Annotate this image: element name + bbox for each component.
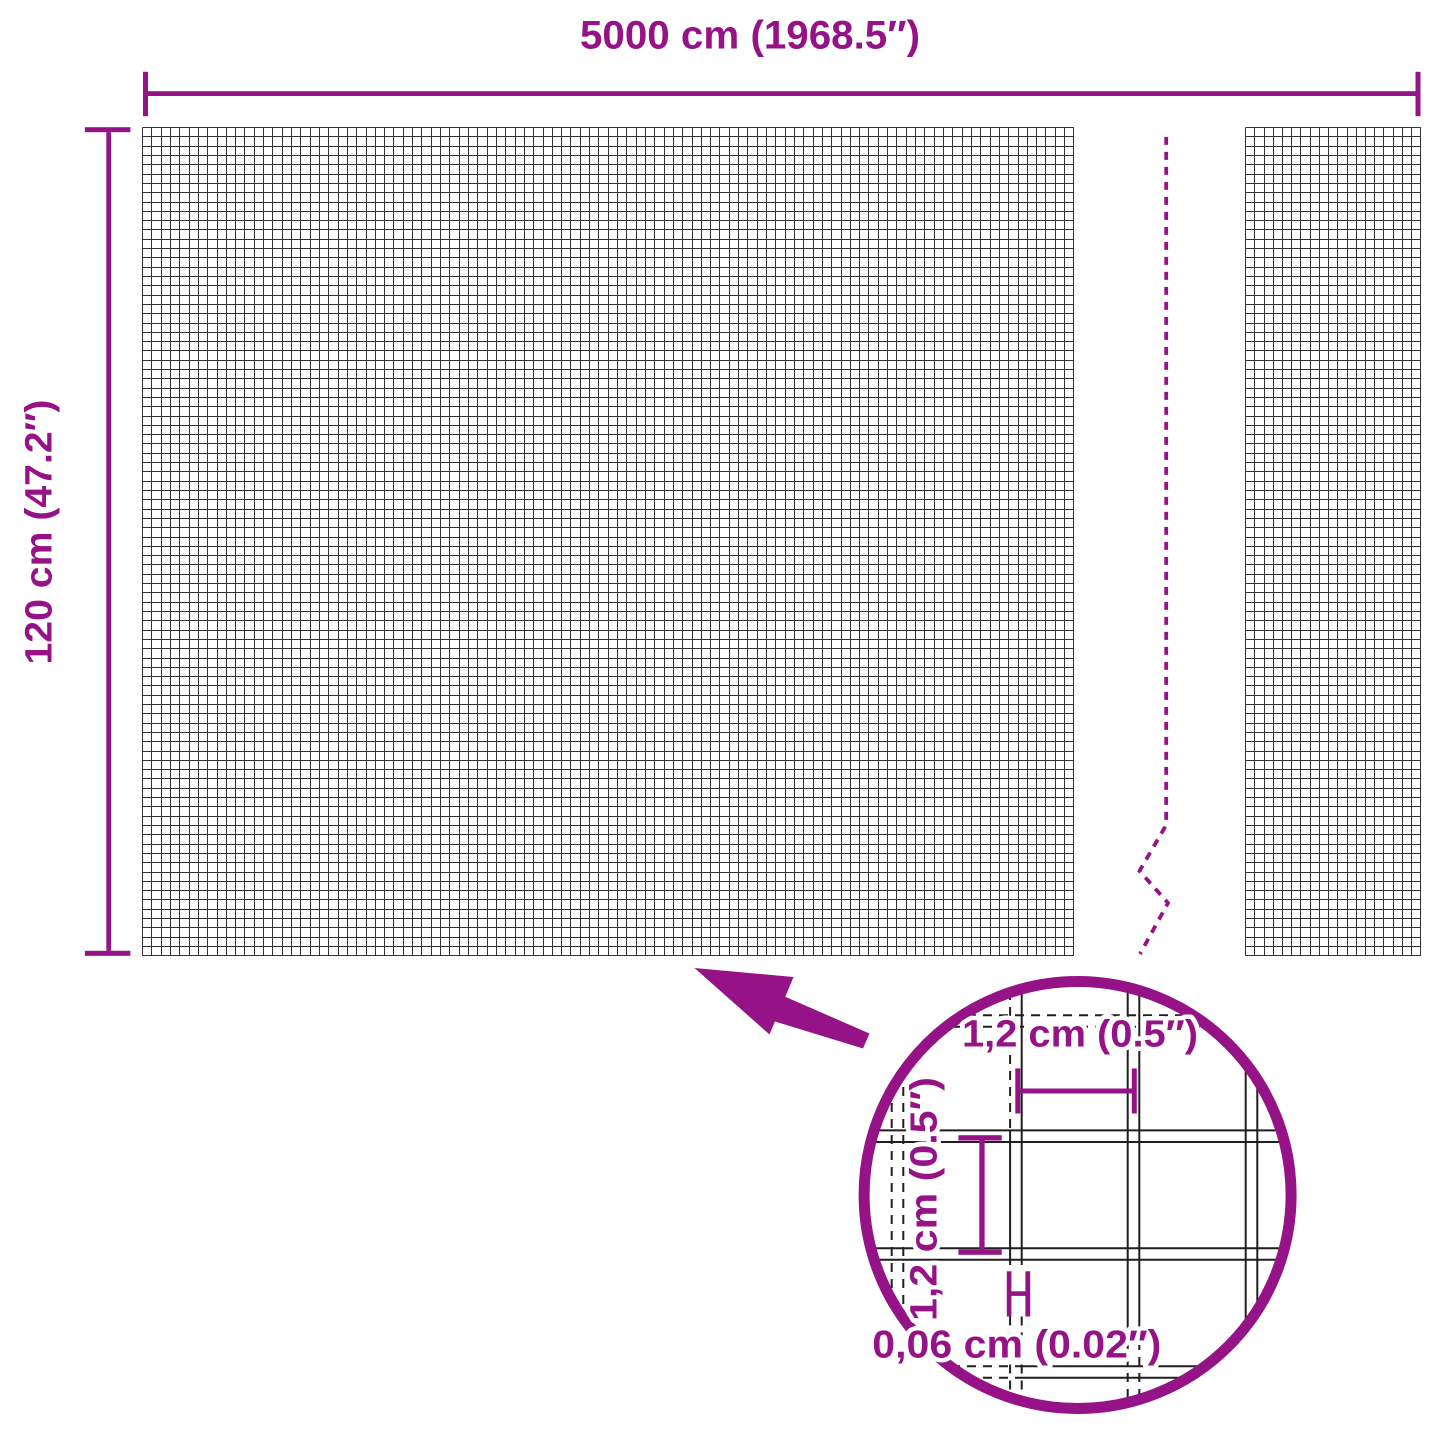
svg-text:5000 cm (1968.5″): 5000 cm (1968.5″) — [580, 14, 920, 58]
svg-text:120 cm (47.2″): 120 cm (47.2″) — [19, 400, 61, 665]
svg-text:1,2 cm (0.5″): 1,2 cm (0.5″) — [904, 1077, 946, 1321]
svg-text:1,2 cm (0.5″): 1,2 cm (0.5″) — [962, 1014, 1198, 1056]
svg-text:0,06 cm (0.02″): 0,06 cm (0.02″) — [872, 1324, 1161, 1367]
